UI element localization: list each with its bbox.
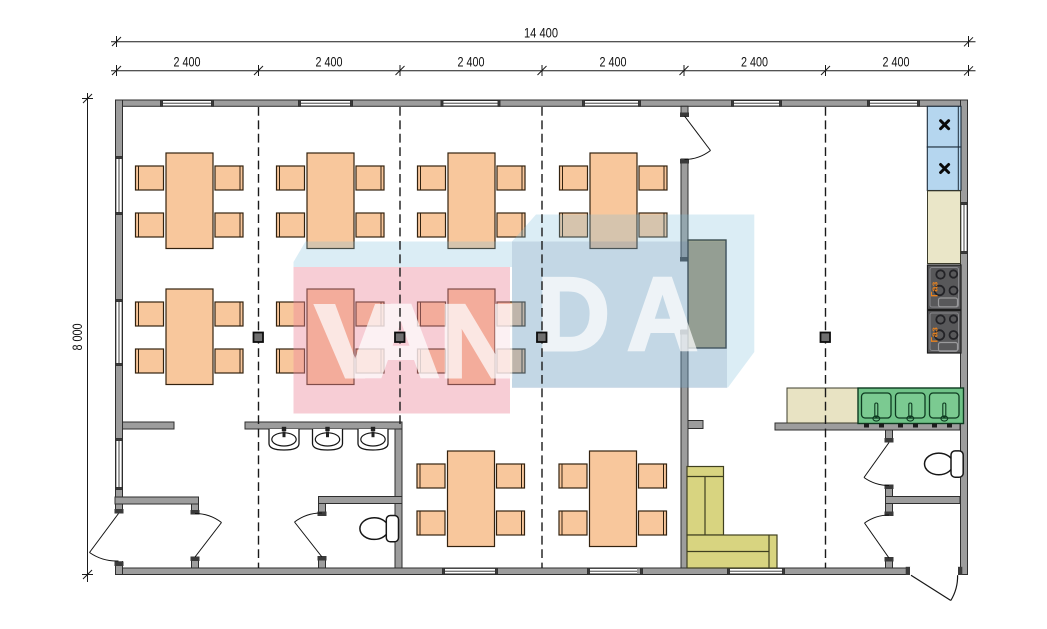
- svg-text:2 400: 2 400: [316, 54, 343, 70]
- svg-text:Газ: Газ: [930, 281, 941, 297]
- svg-text:N: N: [439, 284, 518, 400]
- svg-text:2 400: 2 400: [174, 54, 201, 70]
- svg-text:2 400: 2 400: [458, 54, 485, 70]
- svg-text:2 400: 2 400: [741, 54, 768, 70]
- svg-text:D: D: [537, 257, 610, 373]
- svg-text:A: A: [627, 257, 698, 373]
- svg-text:Газ: Газ: [930, 327, 941, 343]
- svg-text:2 400: 2 400: [600, 54, 627, 70]
- svg-text:14 400: 14 400: [524, 25, 558, 41]
- svg-text:8 000: 8 000: [69, 323, 85, 350]
- svg-text:2 400: 2 400: [883, 54, 910, 70]
